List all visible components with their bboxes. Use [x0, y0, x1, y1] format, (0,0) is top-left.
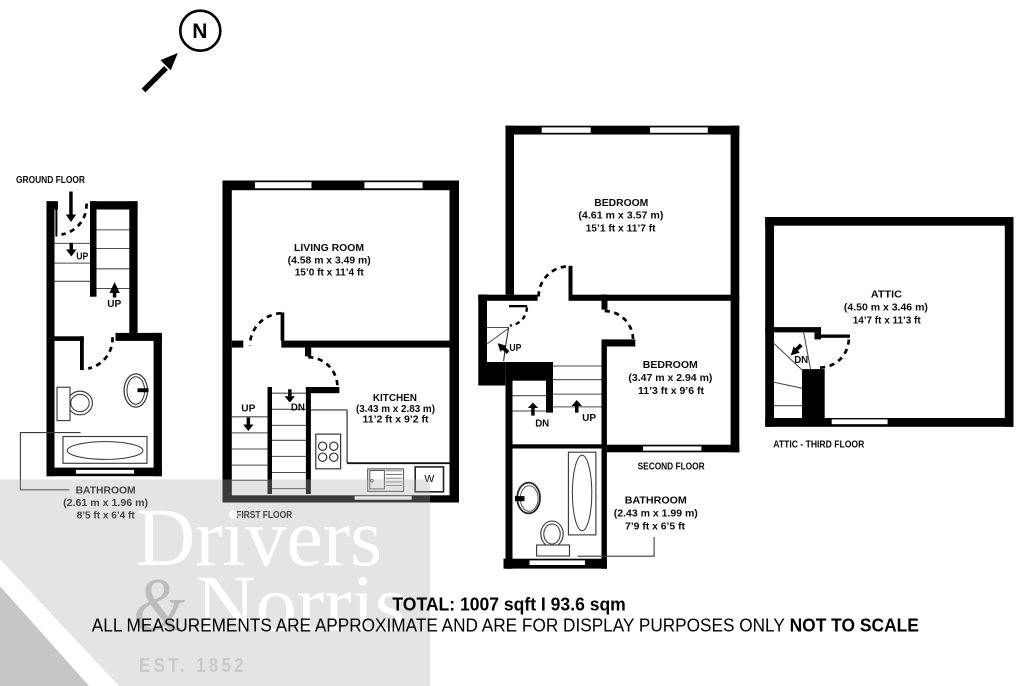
svg-text:SECOND FLOOR: SECOND FLOOR [638, 462, 706, 473]
svg-text:(4.50 m x 3.46 m): (4.50 m x 3.46 m) [844, 302, 928, 313]
svg-text:15’0 ft x 11’4 ft: 15’0 ft x 11’4 ft [295, 268, 365, 279]
svg-text:BATHROOM: BATHROOM [625, 496, 687, 507]
svg-text:N: N [192, 20, 207, 43]
svg-text:DN: DN [291, 402, 305, 413]
svg-text:BEDROOM: BEDROOM [594, 198, 648, 209]
svg-text:EST. 1852: EST. 1852 [139, 655, 247, 677]
svg-text:14’7 ft x 11’3 ft: 14’7 ft x 11’3 ft [853, 316, 922, 327]
svg-text:ALL MEASUREMENTS ARE APPROXIMA: ALL MEASUREMENTS ARE APPROXIMATE AND ARE… [92, 614, 785, 635]
svg-text:TOTAL: 1007 sqft I 93.6 sqm: TOTAL: 1007 sqft I 93.6 sqm [392, 593, 625, 614]
svg-text:11’3 ft x 9’6 ft: 11’3 ft x 9’6 ft [638, 386, 705, 397]
svg-text:7’9 ft x 6’5 ft: 7’9 ft x 6’5 ft [625, 522, 686, 533]
svg-text:11’2 ft x 9’2 ft: 11’2 ft x 9’2 ft [363, 415, 430, 426]
svg-text:ATTIC: ATTIC [871, 290, 903, 301]
svg-text:(4.61 m x 3.57 m): (4.61 m x 3.57 m) [578, 211, 663, 222]
svg-text:(3.47 m x 2.94 m): (3.47 m x 2.94 m) [628, 373, 712, 384]
svg-text:UP: UP [241, 404, 255, 415]
svg-text:BEDROOM: BEDROOM [643, 360, 698, 371]
svg-text:DN: DN [535, 419, 549, 430]
svg-text:15’1 ft x 11’7 ft: 15’1 ft x 11’7 ft [586, 224, 657, 235]
svg-text:ATTIC - THIRD FLOOR: ATTIC - THIRD FLOOR [773, 440, 865, 451]
svg-text:NOT TO SCALE: NOT TO SCALE [790, 614, 919, 635]
svg-text:LIVING ROOM: LIVING ROOM [294, 243, 364, 254]
svg-text:(2.43 m x 1.99 m): (2.43 m x 1.99 m) [614, 508, 698, 519]
svg-text:UP: UP [76, 251, 88, 262]
svg-text:UP: UP [509, 343, 521, 354]
svg-text:(4.58 m x 3.49 m): (4.58 m x 3.49 m) [288, 256, 371, 267]
svg-text:UP: UP [107, 299, 121, 310]
svg-text:UP: UP [582, 413, 596, 424]
svg-text:DN: DN [794, 355, 808, 366]
svg-text:KITCHEN: KITCHEN [373, 393, 417, 404]
svg-text:(3.43 m x 2.83 m): (3.43 m x 2.83 m) [356, 404, 435, 415]
svg-text:GROUND FLOOR: GROUND FLOOR [16, 175, 86, 186]
